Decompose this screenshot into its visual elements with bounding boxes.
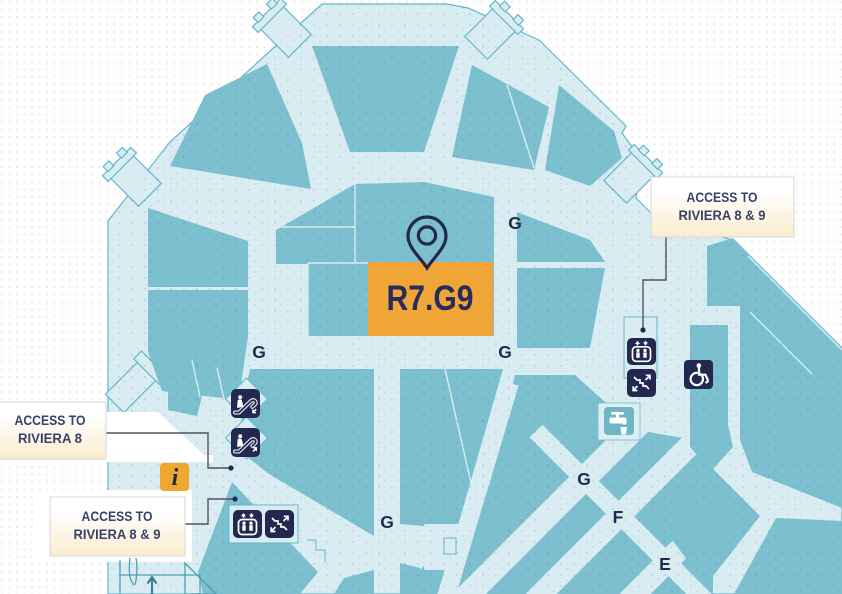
svg-text:G: G (252, 342, 266, 362)
svg-text:G: G (380, 512, 394, 532)
svg-text:ACCESS TO: ACCESS TO (687, 190, 758, 205)
svg-text:G: G (577, 469, 591, 489)
svg-text:R7.G9: R7.G9 (387, 279, 474, 318)
svg-text:ACCESS TO: ACCESS TO (15, 413, 86, 428)
svg-text:G: G (498, 342, 512, 362)
svg-text:RIVIERA 8 & 9: RIVIERA 8 & 9 (679, 208, 766, 223)
svg-text:RIVIERA 8: RIVIERA 8 (18, 431, 82, 446)
svg-text:E: E (659, 554, 671, 574)
svg-text:i: i (172, 465, 179, 491)
svg-text:ACCESS TO: ACCESS TO (82, 509, 153, 524)
svg-text:G: G (508, 213, 522, 233)
svg-text:F: F (613, 507, 624, 527)
svg-text:RIVIERA 8 & 9: RIVIERA 8 & 9 (74, 527, 161, 542)
